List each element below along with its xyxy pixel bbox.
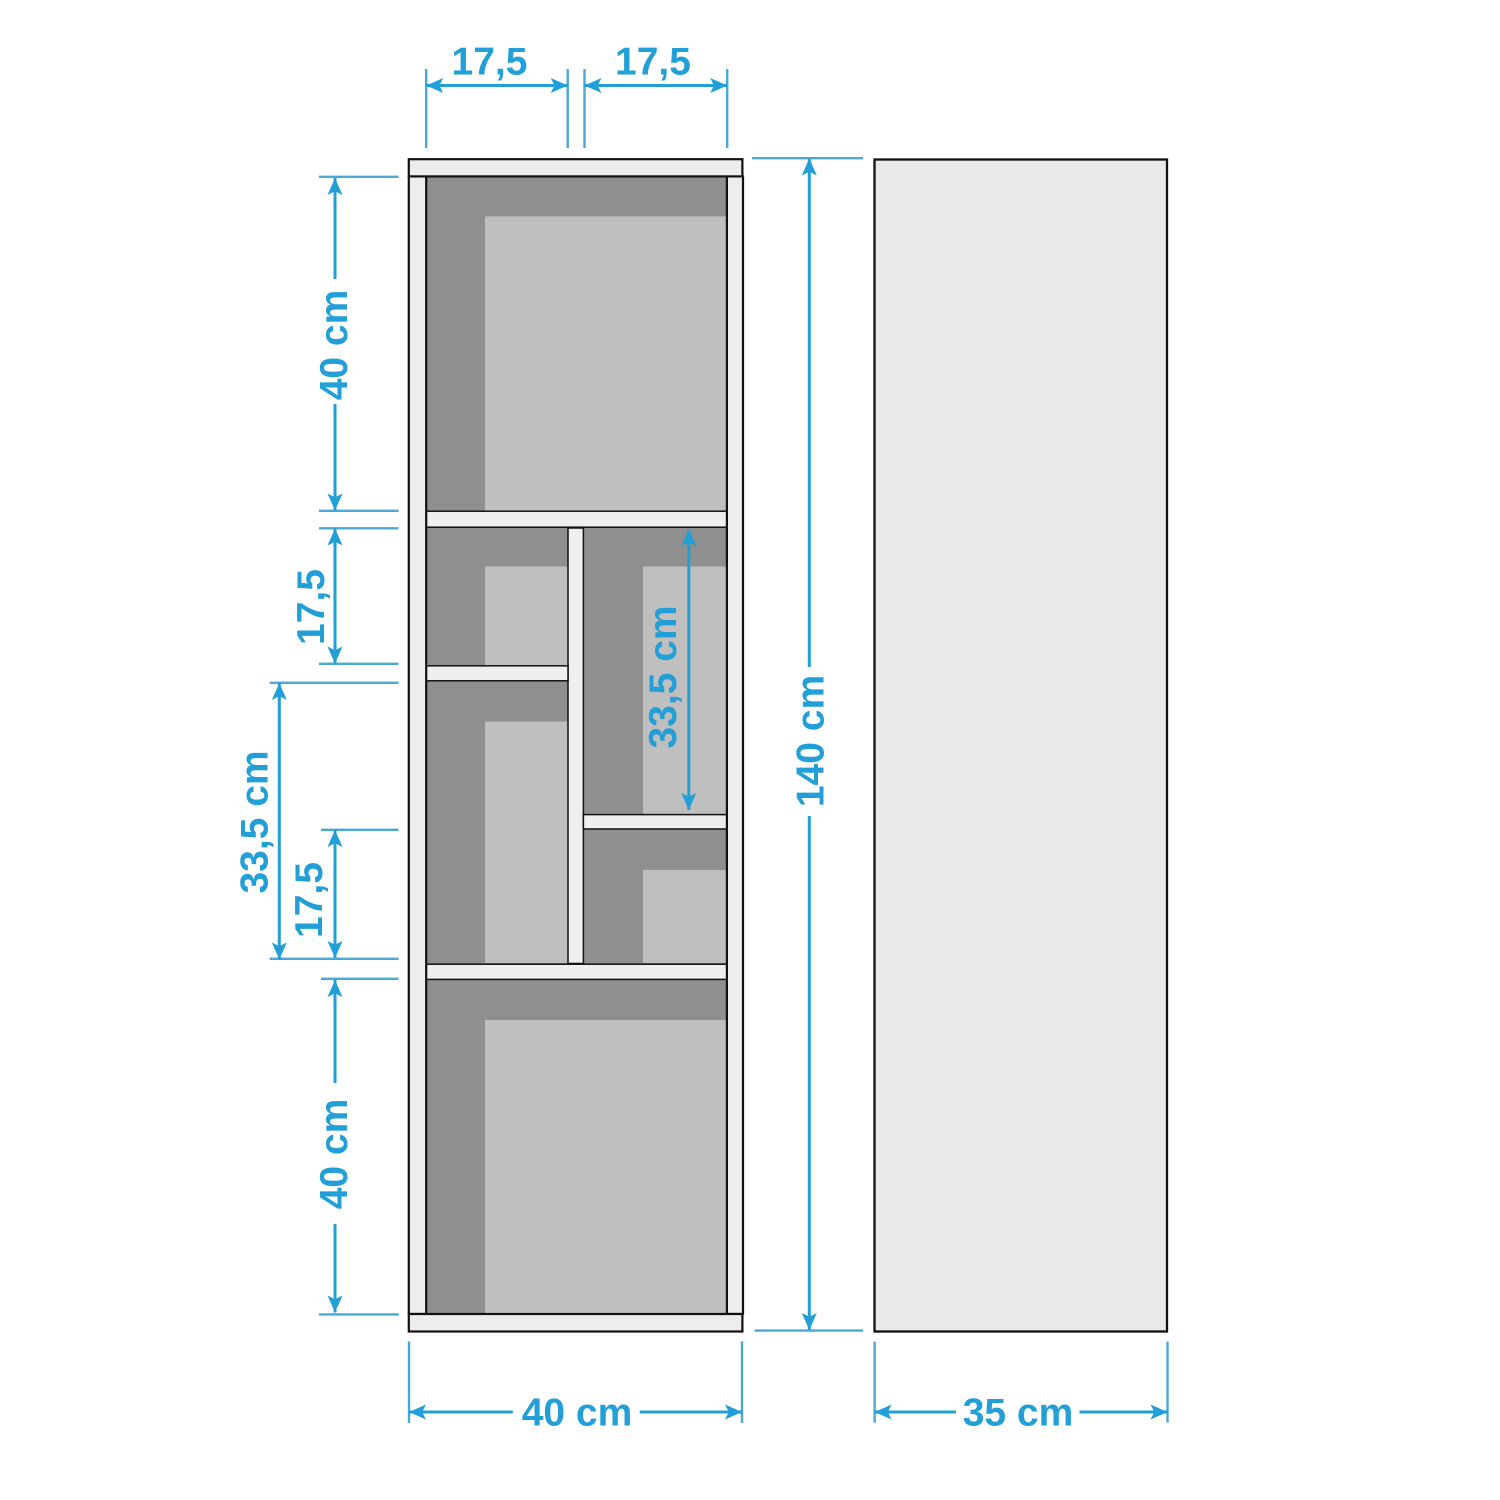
svg-text:33,5 cm: 33,5 cm (642, 605, 685, 748)
svg-text:40 cm: 40 cm (522, 1392, 633, 1435)
svg-text:40 cm: 40 cm (313, 1099, 356, 1210)
svg-text:17,5: 17,5 (615, 41, 691, 84)
svg-text:40 cm: 40 cm (313, 290, 356, 401)
svg-text:33,5 cm: 33,5 cm (234, 750, 277, 893)
svg-text:35 cm: 35 cm (963, 1392, 1074, 1435)
svg-text:17,5: 17,5 (288, 862, 331, 938)
svg-text:17,5: 17,5 (452, 41, 528, 84)
svg-text:17,5: 17,5 (290, 569, 333, 645)
svg-text:140 cm: 140 cm (789, 675, 832, 807)
